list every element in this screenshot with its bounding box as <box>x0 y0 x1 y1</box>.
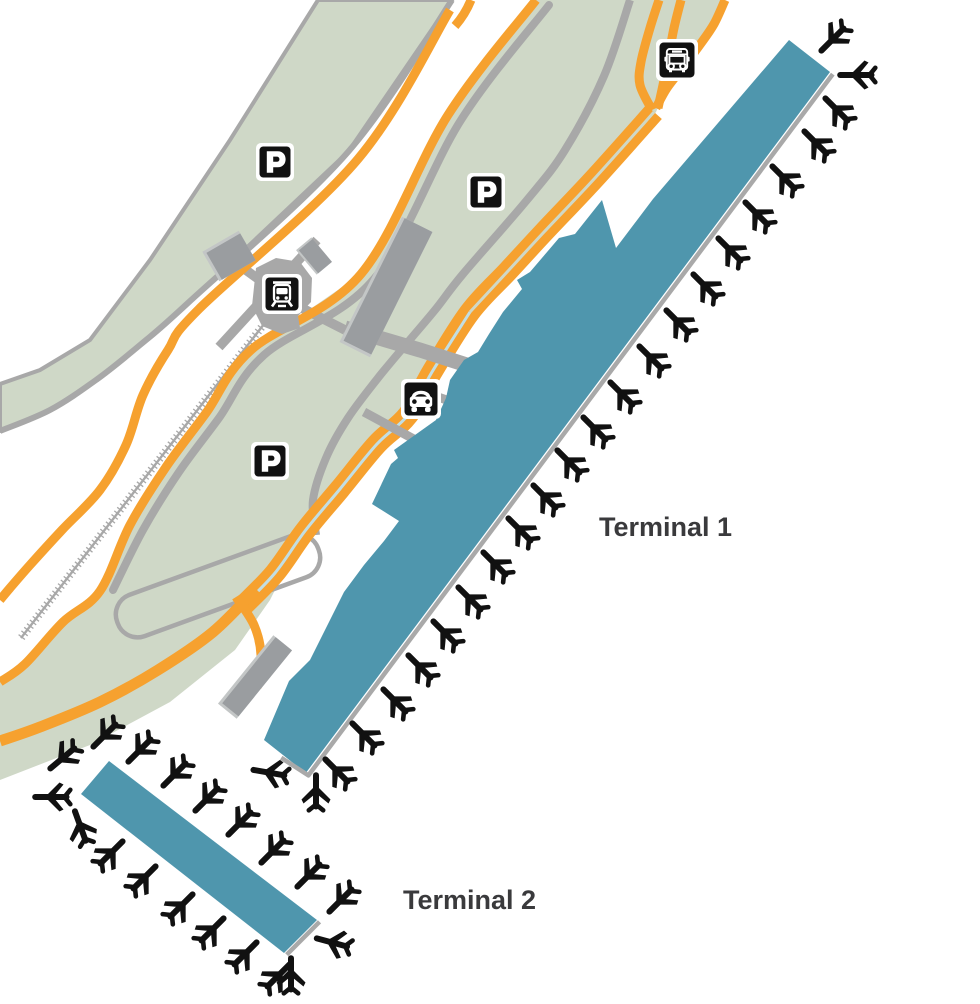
svg-text:Terminal 1: Terminal 1 <box>599 512 732 542</box>
svg-text:Terminal 2: Terminal 2 <box>403 885 536 915</box>
